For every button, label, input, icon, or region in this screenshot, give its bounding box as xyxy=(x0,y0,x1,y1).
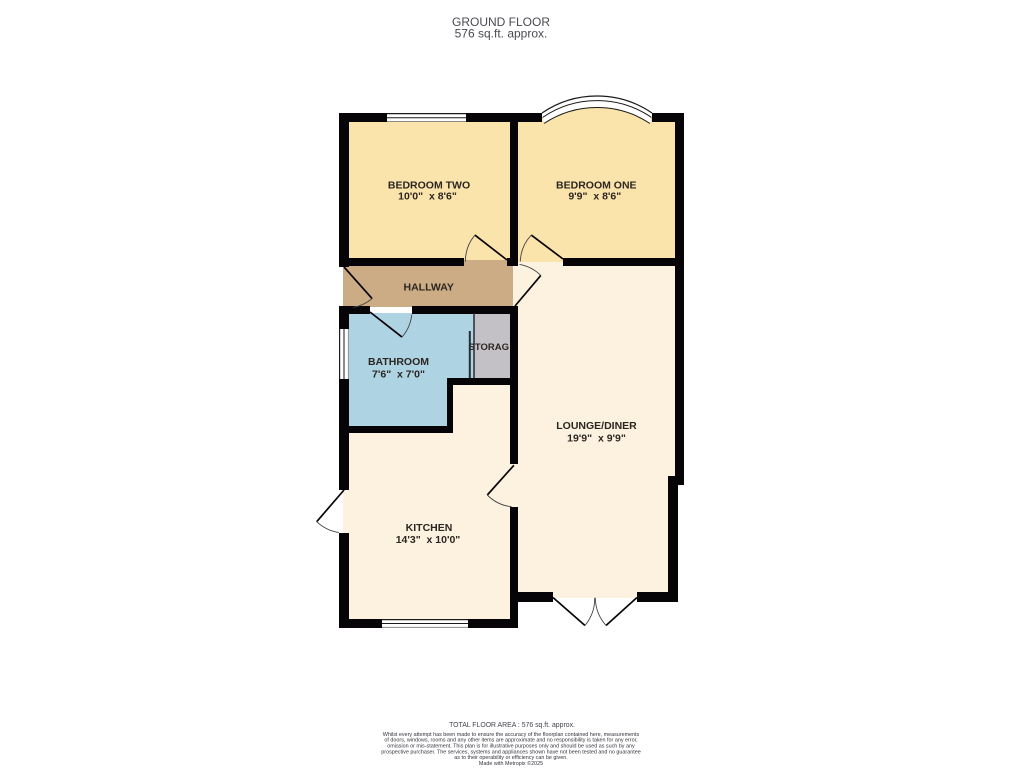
svg-text:7'6" x 7'0": 7'6" x 7'0" xyxy=(372,369,425,381)
svg-text:HALLWAY: HALLWAY xyxy=(404,282,454,294)
svg-text:19'9" x 9'9": 19'9" x 9'9" xyxy=(567,433,626,445)
svg-text:Made with Metropix ©2025: Made with Metropix ©2025 xyxy=(479,760,543,767)
svg-text:TOTAL FLOOR AREA : 576 sq.ft.: TOTAL FLOOR AREA : 576 sq.ft. approx. xyxy=(449,722,575,729)
svg-text:9'9" x 8'6": 9'9" x 8'6" xyxy=(568,191,621,203)
svg-text:576 sq.ft. approx.: 576 sq.ft. approx. xyxy=(455,27,548,41)
svg-text:BATHROOM: BATHROOM xyxy=(368,356,429,368)
svg-text:STORAG: STORAG xyxy=(469,342,509,353)
svg-text:KITCHEN: KITCHEN xyxy=(406,522,453,534)
svg-text:LOUNGE/DINER: LOUNGE/DINER xyxy=(556,420,637,432)
svg-text:14'3" x 10'0": 14'3" x 10'0" xyxy=(396,534,461,546)
svg-text:10'0" x 8'6": 10'0" x 8'6" xyxy=(398,191,457,203)
